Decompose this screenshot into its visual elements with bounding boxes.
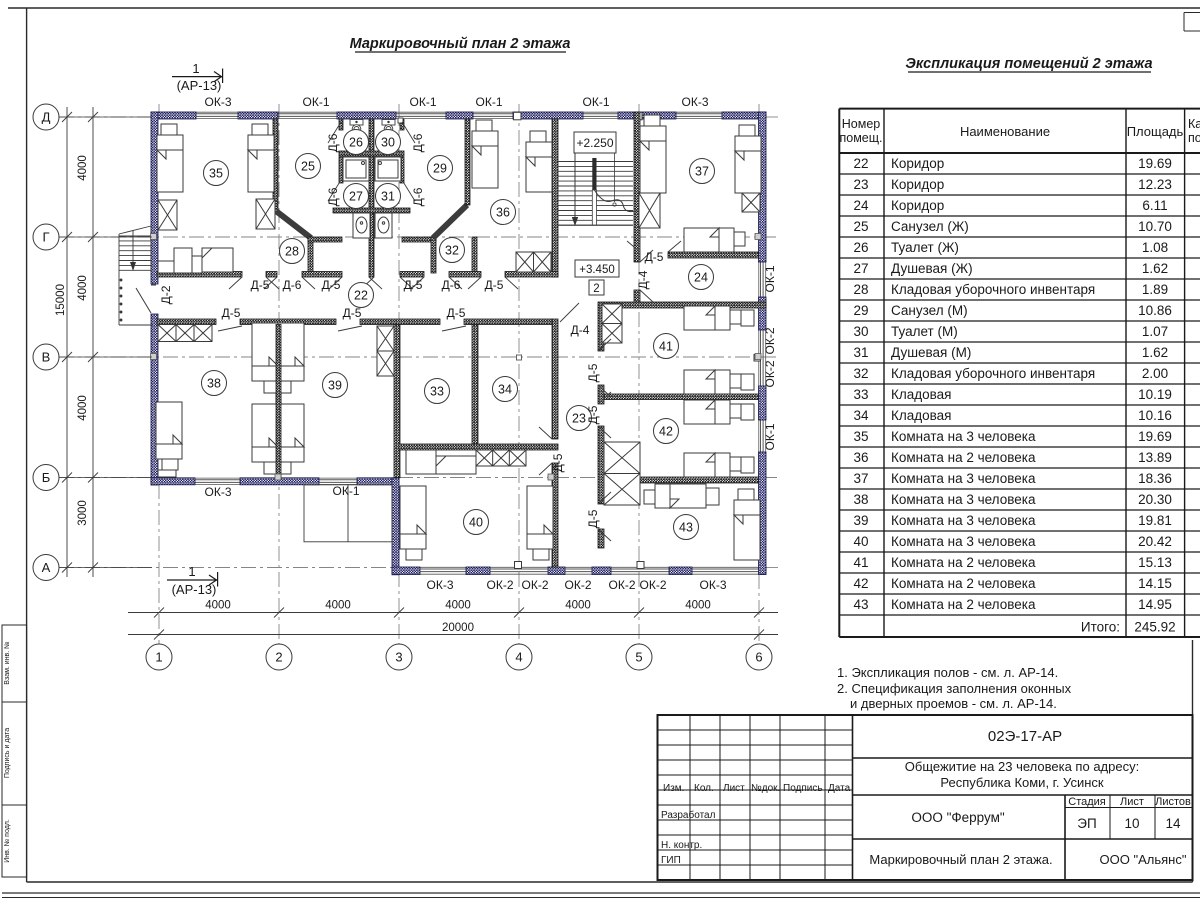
svg-text:Комната на 3 человека: Комната на 3 человека bbox=[891, 513, 1036, 528]
svg-text:Санузел (М): Санузел (М) bbox=[891, 303, 968, 318]
svg-text:Комната на 3 человека: Комната на 3 человека bbox=[891, 534, 1036, 549]
svg-text:ОК-1: ОК-1 bbox=[763, 423, 777, 450]
svg-text:24: 24 bbox=[694, 271, 708, 285]
svg-text:Коридор: Коридор bbox=[891, 177, 944, 192]
svg-text:Лист: Лист bbox=[1120, 796, 1144, 808]
svg-text:ОК-1: ОК-1 bbox=[476, 95, 503, 109]
svg-text:24: 24 bbox=[853, 198, 869, 213]
svg-text:ОК-3: ОК-3 bbox=[205, 485, 232, 499]
svg-text:35: 35 bbox=[209, 167, 223, 181]
svg-text:02Э-17-АР: 02Э-17-АР bbox=[988, 728, 1062, 745]
svg-text:Д-5: Д-5 bbox=[586, 405, 600, 424]
svg-text:43: 43 bbox=[853, 597, 868, 612]
svg-text:ООО "Альянс": ООО "Альянс" bbox=[1100, 852, 1187, 867]
svg-text:Наименование: Наименование bbox=[960, 124, 1050, 139]
svg-text:(АР-13): (АР-13) bbox=[177, 78, 222, 93]
svg-text:10.70: 10.70 bbox=[1138, 219, 1172, 234]
svg-text:Д-6: Д-6 bbox=[442, 278, 461, 292]
svg-text:Д-6: Д-6 bbox=[326, 187, 340, 206]
svg-text:36: 36 bbox=[496, 206, 510, 220]
svg-text:20.30: 20.30 bbox=[1138, 492, 1172, 507]
svg-text:ОК-3: ОК-3 bbox=[700, 578, 727, 592]
svg-text:Д-5: Д-5 bbox=[586, 509, 600, 528]
svg-text:34: 34 bbox=[853, 408, 869, 423]
svg-text:12.23: 12.23 bbox=[1138, 177, 1172, 192]
svg-text:13.89: 13.89 bbox=[1138, 450, 1172, 465]
svg-text:ОК-3: ОК-3 bbox=[682, 95, 709, 109]
svg-text:23: 23 bbox=[853, 177, 868, 192]
svg-text:4000: 4000 bbox=[445, 600, 471, 612]
svg-text:20.42: 20.42 bbox=[1138, 534, 1172, 549]
svg-text:26: 26 bbox=[853, 240, 868, 255]
svg-text:Д-5: Д-5 bbox=[222, 306, 241, 320]
svg-text:39: 39 bbox=[853, 513, 868, 528]
svg-text:Комната на 2 человека: Комната на 2 человека bbox=[891, 597, 1036, 612]
svg-text:Комната на 2 человека: Комната на 2 человека bbox=[891, 450, 1036, 465]
svg-text:245.92: 245.92 bbox=[1134, 620, 1175, 635]
svg-text:Д-5: Д-5 bbox=[586, 363, 600, 382]
svg-text:Комната на 2 человека: Комната на 2 человека bbox=[891, 576, 1036, 591]
svg-text:Д-5: Д-5 bbox=[322, 278, 341, 292]
svg-text:Д-4: Д-4 bbox=[636, 270, 650, 289]
svg-text:Площадь: Площадь bbox=[1127, 124, 1184, 139]
svg-text:Листов: Листов bbox=[1155, 796, 1191, 808]
svg-text:6: 6 bbox=[755, 650, 762, 665]
svg-text:22: 22 bbox=[853, 156, 868, 171]
svg-text:20000: 20000 bbox=[442, 622, 474, 634]
svg-text:19.69: 19.69 bbox=[1138, 429, 1172, 444]
svg-text:Душевая (Ж): Душевая (Ж) bbox=[891, 261, 973, 276]
svg-text:Д-6: Д-6 bbox=[283, 278, 302, 292]
svg-text:4000: 4000 bbox=[77, 275, 89, 301]
svg-text:38: 38 bbox=[853, 492, 868, 507]
svg-text:4000: 4000 bbox=[565, 600, 591, 612]
svg-text:15000: 15000 bbox=[55, 284, 67, 316]
svg-text:1: 1 bbox=[192, 61, 199, 76]
svg-text:Номер: Номер bbox=[842, 117, 881, 131]
svg-text:Д: Д bbox=[42, 110, 51, 125]
svg-text:29: 29 bbox=[433, 162, 447, 176]
svg-text:1.89: 1.89 bbox=[1142, 282, 1168, 297]
svg-text:43: 43 bbox=[679, 521, 693, 535]
svg-text:3: 3 bbox=[395, 650, 402, 665]
svg-text:2: 2 bbox=[275, 650, 282, 665]
svg-text:4: 4 bbox=[515, 650, 522, 665]
svg-text:4000: 4000 bbox=[77, 395, 89, 421]
svg-text:Д-5: Д-5 bbox=[551, 453, 565, 472]
svg-text:27: 27 bbox=[853, 261, 868, 276]
svg-text:Комната на 3 человека: Комната на 3 человека bbox=[891, 429, 1036, 444]
svg-text:Взам. инв. №: Взам. инв. № bbox=[4, 641, 11, 684]
svg-text:ОК-2: ОК-2 bbox=[763, 327, 777, 354]
svg-text:14: 14 bbox=[1165, 816, 1181, 831]
svg-text:1.07: 1.07 bbox=[1142, 324, 1168, 339]
svg-text:ОК-2: ОК-2 bbox=[609, 578, 636, 592]
svg-text:Комната на 2 человека: Комната на 2 человека bbox=[891, 555, 1036, 570]
svg-text:+2.250: +2.250 bbox=[576, 136, 613, 150]
svg-text:42: 42 bbox=[853, 576, 868, 591]
svg-text:Санузел (Ж): Санузел (Ж) bbox=[891, 219, 969, 234]
svg-text:ОК-2: ОК-2 bbox=[565, 578, 592, 592]
svg-text:Б: Б bbox=[42, 470, 51, 485]
svg-text:Ка: Ка bbox=[1188, 117, 1200, 131]
svg-text:Коридор: Коридор bbox=[891, 156, 944, 171]
svg-text:ОК-3: ОК-3 bbox=[427, 578, 454, 592]
svg-text:ОК-1: ОК-1 bbox=[303, 95, 330, 109]
svg-text:Д-5: Д-5 bbox=[343, 306, 362, 320]
svg-text:38: 38 bbox=[207, 377, 221, 391]
svg-text:ГИП: ГИП bbox=[661, 855, 681, 866]
svg-text:ОК-2: ОК-2 bbox=[522, 578, 549, 592]
svg-text:Комната на 3 человека: Комната на 3 человека bbox=[891, 471, 1036, 486]
svg-text:Коридор: Коридор bbox=[891, 198, 944, 213]
svg-text:ОК-2: ОК-2 bbox=[763, 360, 777, 387]
svg-text:37: 37 bbox=[853, 471, 868, 486]
svg-text:ООО "Феррум": ООО "Феррум" bbox=[911, 810, 1005, 825]
svg-text:23: 23 bbox=[572, 412, 586, 426]
svg-text:2: 2 bbox=[593, 283, 599, 295]
svg-text:Подпись и дата: Подпись и дата bbox=[4, 728, 11, 778]
svg-text:Стадия: Стадия bbox=[1068, 796, 1106, 808]
svg-text:помещ.: помещ. bbox=[839, 131, 882, 145]
svg-text:41: 41 bbox=[853, 555, 868, 570]
svg-text:6.11: 6.11 bbox=[1142, 198, 1167, 213]
svg-text:14.15: 14.15 bbox=[1138, 576, 1172, 591]
svg-text:33: 33 bbox=[853, 387, 868, 402]
svg-text:А: А bbox=[42, 560, 51, 575]
svg-text:Комната на 3 человека: Комната на 3 человека bbox=[891, 492, 1036, 507]
svg-text:Маркировочный план 2 этажа: Маркировочный план 2 этажа bbox=[350, 36, 571, 52]
svg-text:1.08: 1.08 bbox=[1142, 240, 1168, 255]
svg-text:№док.: №док. bbox=[751, 783, 780, 794]
svg-text:+3.450: +3.450 bbox=[579, 264, 615, 276]
svg-text:ОК-1: ОК-1 bbox=[583, 95, 610, 109]
svg-text:Туалет (Ж): Туалет (Ж) bbox=[891, 240, 959, 255]
svg-text:Д-5: Д-5 bbox=[447, 306, 466, 320]
svg-text:28: 28 bbox=[853, 282, 868, 297]
svg-text:1.62: 1.62 bbox=[1142, 261, 1168, 276]
svg-text:ОК-3: ОК-3 bbox=[205, 95, 232, 109]
svg-text:Кол.: Кол. bbox=[694, 783, 714, 794]
svg-text:Разработал: Разработал bbox=[661, 809, 716, 821]
svg-text:Д-6: Д-6 bbox=[411, 187, 425, 206]
svg-text:1: 1 bbox=[155, 650, 162, 665]
svg-text:Общежитие на 23 человека по ад: Общежитие на 23 человека по адресу: bbox=[905, 759, 1139, 774]
svg-text:19.69: 19.69 bbox=[1138, 156, 1172, 171]
svg-text:4000: 4000 bbox=[77, 155, 89, 181]
svg-text:1. Экспликация полов - см. л.: 1. Экспликация полов - см. л. АР-14. bbox=[837, 665, 1058, 680]
svg-text:Д-4: Д-4 bbox=[571, 323, 590, 337]
svg-text:3000: 3000 bbox=[77, 500, 89, 526]
svg-text:10: 10 bbox=[1124, 816, 1139, 831]
svg-text:29: 29 bbox=[853, 303, 868, 318]
svg-text:Д-5: Д-5 bbox=[404, 278, 423, 292]
svg-text:ОК-1: ОК-1 bbox=[410, 95, 437, 109]
svg-text:ОК-2: ОК-2 bbox=[640, 578, 667, 592]
svg-text:и дверных проемов - см. л. АР-: и дверных проемов - см. л. АР-14. bbox=[850, 696, 1057, 711]
svg-text:ОК-1: ОК-1 bbox=[763, 265, 777, 292]
svg-text:2. Спецификация заполнения око: 2. Спецификация заполнения оконных bbox=[837, 681, 1072, 696]
svg-text:31: 31 bbox=[381, 190, 395, 204]
svg-text:Итого:: Итого: bbox=[1081, 620, 1120, 635]
svg-text:10.86: 10.86 bbox=[1138, 303, 1172, 318]
svg-text:Н. контр.: Н. контр. bbox=[661, 840, 702, 851]
svg-text:Кладовая уборочного инвентаря: Кладовая уборочного инвентаря bbox=[891, 282, 1095, 297]
svg-text:42: 42 bbox=[659, 425, 673, 439]
svg-text:30: 30 bbox=[381, 136, 395, 150]
svg-text:36: 36 bbox=[853, 450, 868, 465]
svg-text:22: 22 bbox=[354, 289, 368, 303]
svg-text:Изм.: Изм. bbox=[663, 783, 684, 794]
svg-text:Д-5: Д-5 bbox=[645, 250, 664, 264]
svg-text:Экспликация помещений 2 этажа: Экспликация помещений 2 этажа bbox=[905, 56, 1152, 72]
svg-text:В: В bbox=[42, 350, 51, 365]
svg-text:15.13: 15.13 bbox=[1138, 555, 1172, 570]
svg-text:Дата: Дата bbox=[828, 783, 851, 794]
svg-text:4000: 4000 bbox=[685, 600, 711, 612]
svg-text:40: 40 bbox=[853, 534, 868, 549]
svg-text:35: 35 bbox=[853, 429, 868, 444]
svg-text:2.00: 2.00 bbox=[1142, 366, 1168, 381]
svg-text:33: 33 bbox=[430, 385, 444, 399]
svg-text:25: 25 bbox=[301, 160, 315, 174]
svg-text:1: 1 bbox=[188, 564, 195, 579]
svg-text:40: 40 bbox=[469, 516, 483, 530]
svg-text:Кладовая: Кладовая bbox=[891, 387, 951, 402]
svg-text:28: 28 bbox=[285, 245, 299, 259]
svg-text:Кладовая уборочного инвентаря: Кладовая уборочного инвентаря bbox=[891, 366, 1095, 381]
svg-text:26: 26 bbox=[349, 136, 363, 150]
svg-text:Кладовая: Кладовая bbox=[891, 408, 951, 423]
svg-text:32: 32 bbox=[853, 366, 868, 381]
svg-text:Республика Коми, г. Усинск: Республика Коми, г. Усинск bbox=[940, 775, 1103, 790]
svg-text:41: 41 bbox=[659, 340, 673, 354]
svg-text:Д-6: Д-6 bbox=[326, 133, 340, 152]
svg-text:Д-6: Д-6 bbox=[411, 133, 425, 152]
svg-text:18.36: 18.36 bbox=[1138, 471, 1172, 486]
svg-text:Г: Г bbox=[42, 230, 49, 245]
svg-text:Д-5: Д-5 bbox=[251, 278, 270, 292]
svg-text:Подпись: Подпись bbox=[783, 783, 823, 794]
svg-text:Душевая (М): Душевая (М) bbox=[891, 345, 971, 360]
svg-text:10.19: 10.19 bbox=[1138, 387, 1172, 402]
svg-text:Инв. № подл.: Инв. № подл. bbox=[4, 819, 11, 863]
svg-text:Туалет (М): Туалет (М) bbox=[891, 324, 958, 339]
svg-text:ОК-1: ОК-1 bbox=[333, 484, 360, 498]
svg-text:по: по bbox=[1188, 131, 1200, 145]
svg-text:4000: 4000 bbox=[325, 600, 351, 612]
svg-text:4000: 4000 bbox=[205, 600, 231, 612]
svg-text:1.62: 1.62 bbox=[1142, 345, 1168, 360]
svg-text:14.95: 14.95 bbox=[1138, 597, 1172, 612]
svg-text:5: 5 bbox=[635, 650, 642, 665]
svg-text:Д-2: Д-2 bbox=[159, 285, 173, 304]
svg-text:Лист: Лист bbox=[723, 783, 745, 794]
svg-text:25: 25 bbox=[853, 219, 868, 234]
svg-text:Д-5: Д-5 bbox=[485, 278, 504, 292]
svg-text:ЭП: ЭП bbox=[1077, 816, 1096, 831]
svg-text:31: 31 bbox=[853, 345, 868, 360]
svg-text:39: 39 bbox=[328, 379, 342, 393]
svg-text:37: 37 bbox=[695, 165, 709, 179]
svg-text:10.16: 10.16 bbox=[1138, 408, 1172, 423]
svg-text:27: 27 bbox=[349, 190, 363, 204]
svg-text:Маркировочный план 2 этажа.: Маркировочный план 2 этажа. bbox=[869, 852, 1052, 867]
svg-text:30: 30 bbox=[853, 324, 868, 339]
svg-text:ОК-2: ОК-2 bbox=[487, 578, 514, 592]
svg-text:34: 34 bbox=[498, 383, 512, 397]
svg-text:32: 32 bbox=[445, 244, 459, 258]
svg-text:19.81: 19.81 bbox=[1138, 513, 1172, 528]
